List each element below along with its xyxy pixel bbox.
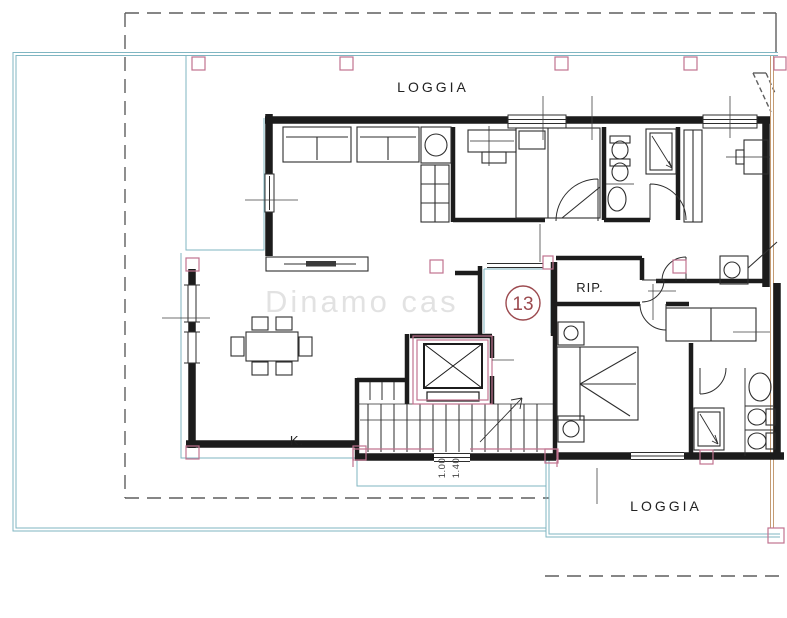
apartment-entry-door [487,264,543,268]
window-south-bedroom2 [631,453,684,460]
stair-upper-treads [370,382,394,400]
dining-chairs [231,317,312,375]
shower-box-2 [694,408,724,450]
apartment-number-text: 13 [512,294,533,315]
sink-icon [606,184,634,211]
toilet-icon [610,136,630,159]
sideboard [266,257,368,271]
pillar [673,260,686,273]
elevator-structure-outline-inner [417,340,488,400]
bed-bedroom2 [557,347,638,420]
sofa-1 [283,127,351,162]
watermark-text: Dinamo cas [265,284,459,319]
label-loggia-top: LOGGIA [397,79,469,95]
window-top-1 [508,115,566,128]
label-loggia-bottom: LOGGIA [630,498,702,514]
bidet-icon [610,159,630,181]
window-top-1-panes [508,120,566,124]
door-bedroom-right [662,257,686,281]
floor-plan-drawing: Dinamo cas [0,0,787,618]
stair-core [357,344,553,452]
bathroom2-niche-lines [745,368,773,456]
sink2-icon [749,373,771,401]
wardrobe-bedroom2 [666,308,756,341]
dining-table [246,332,298,361]
elevator-x-mark [424,344,482,388]
stair-treads [368,404,537,452]
door-bath1 [650,184,686,220]
ramp-dashed-wedge [753,73,775,112]
apartment-number-badge: 13 [506,286,540,320]
pillar [555,57,568,70]
entrance-dimension-1: 1.00 [437,458,448,479]
pillar [768,528,784,543]
label-kitchen: K. [290,433,304,448]
bathroom2-fixtures [694,368,775,456]
pillar [684,57,697,70]
label-storage-room: RIP. [576,280,604,295]
kitchen-tall-cabinet [421,165,449,222]
sofa-2 [357,127,419,162]
pillar [192,57,205,70]
bed-bedroom1 [516,128,600,218]
pillar [430,260,443,273]
wardrobe-bedroom-right [684,130,702,222]
door-bedroom1 [556,179,598,221]
desk-bedroom1 [468,126,516,166]
bathroom1-fixtures [606,129,676,211]
floor-plan-canvas: Dinamo cas [0,0,787,618]
nightstand-1 [558,322,584,345]
bedroom1-furniture [468,126,600,218]
shower-box [646,129,676,174]
elevator-shaft [424,344,482,401]
entrance-dimension-2: 1.40 [451,458,462,479]
kitchen-corner-unit [421,127,451,163]
pillar [774,57,786,70]
door-bath2 [700,368,726,394]
pillar [340,57,353,70]
